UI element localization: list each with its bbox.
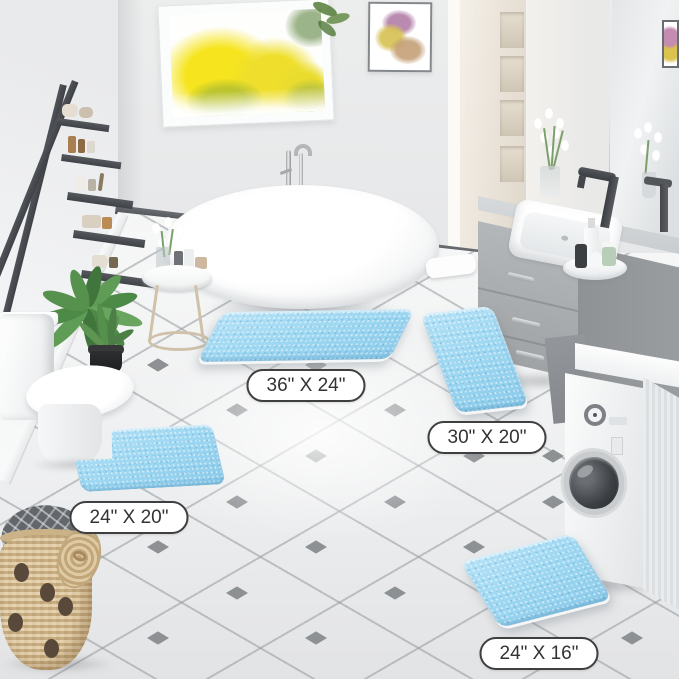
wall-art-frame xyxy=(368,2,433,73)
counter-flower xyxy=(561,140,569,151)
size-label-24x16: 24" X 16" xyxy=(480,637,599,670)
mirror-flower xyxy=(654,132,662,143)
rolled-towel xyxy=(62,104,78,117)
table-flower xyxy=(152,223,160,234)
washer-side-panel xyxy=(643,377,679,610)
ladder-shelf-plank xyxy=(57,118,109,132)
bathroom-scene: 36" X 24" 30" X 20" 24" X 20" 24" X 16" xyxy=(0,0,679,679)
drawer-handle xyxy=(508,272,534,283)
size-label-36x24: 36" X 24" xyxy=(247,369,366,402)
counter-flower xyxy=(545,108,553,119)
rolled-towel xyxy=(79,107,93,118)
door-glass-glare xyxy=(575,463,595,481)
mirror-flower xyxy=(634,128,642,139)
basket-dot xyxy=(58,597,73,616)
table-base-ring xyxy=(148,331,210,351)
table-leg xyxy=(148,285,159,341)
ladder-shelf-plank xyxy=(61,154,121,169)
green-jar xyxy=(602,247,616,266)
folded-towel xyxy=(82,215,101,228)
soap-pump xyxy=(588,218,595,228)
brush xyxy=(98,173,104,191)
cabinet-niche xyxy=(500,12,524,48)
basket-dot xyxy=(8,613,23,632)
faucet-spout xyxy=(294,144,312,156)
bath-mat-36x24 xyxy=(197,309,415,362)
flower-vase xyxy=(540,166,560,198)
basket-dot xyxy=(40,583,55,602)
basket-dot xyxy=(14,563,29,582)
counter-flower xyxy=(534,118,542,129)
table-top xyxy=(142,265,212,291)
size-label-30x20: 30" X 20" xyxy=(428,421,547,454)
ladder-shelf-plank xyxy=(67,192,133,209)
mirror-flower xyxy=(644,122,652,133)
table-flower xyxy=(164,217,172,228)
washer-dial-dot xyxy=(593,413,597,417)
cabinet-niche xyxy=(500,146,524,182)
bottle xyxy=(78,139,85,153)
bottle xyxy=(76,176,86,191)
cabinet-niche xyxy=(500,56,524,92)
mirror-flower xyxy=(652,150,660,161)
size-label-24x20: 24" X 20" xyxy=(70,501,189,534)
table-flower xyxy=(172,235,180,246)
cabinet-niche xyxy=(500,100,524,136)
bathtub-rim-highlight xyxy=(193,193,409,247)
toilet-base xyxy=(38,404,102,466)
drawer-handle xyxy=(516,350,544,361)
basket-dot xyxy=(44,639,59,658)
washer-detergent-drawer xyxy=(611,437,623,455)
bottle xyxy=(87,141,95,153)
bottle xyxy=(68,136,76,153)
bottle xyxy=(88,179,96,191)
washer-display xyxy=(609,417,627,425)
bottle xyxy=(102,217,112,229)
drawer-handle xyxy=(512,317,540,328)
bath-bomb xyxy=(591,252,602,263)
drawer-seam xyxy=(478,287,578,312)
mirror-art-reflection xyxy=(662,20,679,68)
side-table xyxy=(140,215,220,355)
mirror-reflection-faucet xyxy=(660,184,668,232)
basket-lid-handle xyxy=(71,549,87,563)
art-blob-tan xyxy=(390,36,426,64)
mirror xyxy=(608,0,679,240)
dark-bottle xyxy=(575,244,587,268)
